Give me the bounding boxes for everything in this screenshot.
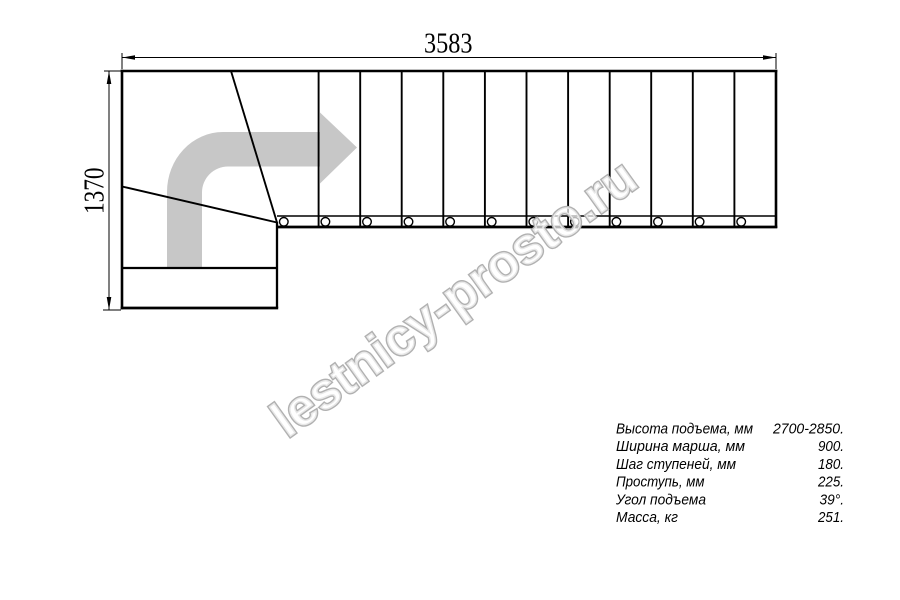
svg-text:Масса, кг: Масса, кг <box>616 509 679 526</box>
svg-text:225.: 225. <box>817 474 844 491</box>
svg-text:251.: 251. <box>817 509 844 526</box>
svg-text:1370: 1370 <box>79 168 111 215</box>
svg-text:Ширина марша, мм: Ширина марша, мм <box>616 438 746 455</box>
svg-text:180.: 180. <box>818 456 844 473</box>
svg-text:Шаг ступеней, мм: Шаг ступеней, мм <box>616 456 737 473</box>
svg-text:Проступь, мм: Проступь, мм <box>616 474 705 491</box>
svg-text:Угол подъема: Угол подъема <box>615 491 706 508</box>
svg-text:3583: 3583 <box>424 28 473 60</box>
svg-text:Высота подъема, мм: Высота подъема, мм <box>616 421 754 438</box>
svg-text:2700-2850.: 2700-2850. <box>772 421 844 438</box>
svg-text:39°.: 39°. <box>820 491 845 508</box>
svg-text:900.: 900. <box>818 438 844 455</box>
